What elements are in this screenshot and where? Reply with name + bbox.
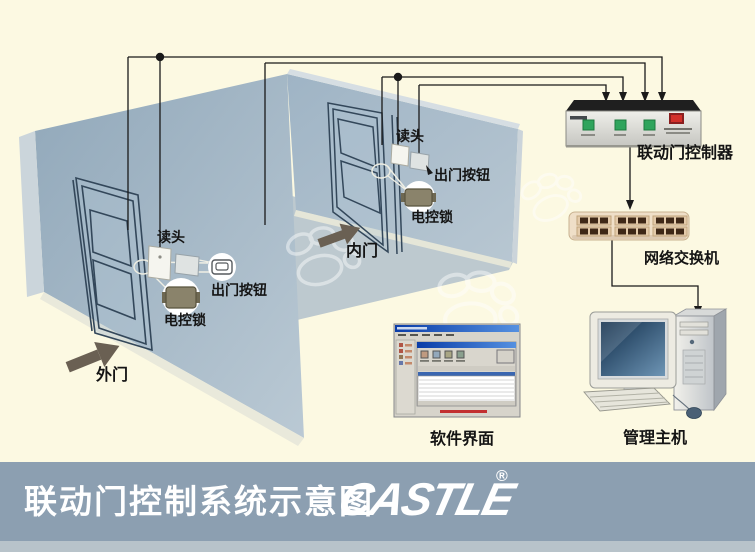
exit-button-icon-inner [216,263,228,270]
rj45-port [600,218,608,224]
tower-grille [683,350,705,384]
rj45-port [656,218,664,224]
rj45-port [600,229,608,235]
outer-reader-label: 读头 [157,229,185,245]
software-inner-titlebar [417,342,516,348]
software-filter-row [418,366,515,371]
controller-button-2 [615,120,626,130]
inner-reader-label: 读头 [396,128,424,144]
rj45-port [628,229,636,235]
registered-trademark-mark: ® [496,468,508,486]
controller-button-label-1 [581,134,595,136]
network-switch-label: 网络交换机 [644,249,719,267]
tower-drive-bay-1 [680,322,708,327]
brand-logo: CASTLE [334,472,518,526]
outer-door-label: 外门 [95,365,128,384]
rj45-port [618,218,626,224]
software-list-header [418,372,515,376]
junction-dot-2 [394,73,402,81]
inner-exit-button-device [410,152,429,171]
rj45-port [628,218,636,224]
software-statusbar [418,401,515,406]
management-host-label: 管理主机 [623,428,687,447]
software-window [394,324,520,417]
rj45-port [666,218,674,224]
controller-device [566,100,701,148]
inner-lock-label: 电控锁 [411,209,453,225]
controller-button-label-2 [614,134,626,136]
rj45-port [580,218,588,224]
mouse [687,408,702,419]
banner-bottom-strip [0,541,755,552]
rj45-port [638,229,646,235]
lock-icon [166,287,196,308]
outer-exit-button-label: 出门按钮 [211,282,267,298]
rj45-port [590,218,598,224]
outer-exit-button-device [175,254,199,276]
software-side-button [497,350,514,363]
controller-button-3 [644,120,655,130]
controller-brand-text [570,116,587,120]
controller-button-1 [583,120,594,130]
software-ui-label: 软件界面 [430,429,494,448]
rj45-port [638,218,646,224]
controller-top [566,100,701,111]
controller-model-text-1 [664,128,692,130]
inner-reader-device [391,144,409,166]
controller-button-label-3 [643,134,655,136]
title-banner: 联动门控制系统示意图 CASTLE ® [0,462,755,541]
door-control-diagram: 读头 出门按钮 电控锁 外门 读头 出门按钮 电控锁 内门 联动门控制器 网络交… [0,0,755,552]
tower-side [714,309,726,410]
controller-model-text-2 [666,132,690,134]
outer-reader-led [158,255,161,258]
outer-lock-label: 电控锁 [164,312,206,328]
rj45-port [580,229,588,235]
rj45-port [666,229,674,235]
outer-reader-device [148,246,171,280]
keyboard [584,388,670,411]
software-title-text [397,327,427,330]
rj45-port [618,229,626,235]
network-switch-device [569,212,689,240]
inner-exit-button-label: 出门按钮 [434,167,490,183]
software-alert-text [440,410,487,413]
tower-power-button [690,340,694,344]
rj45-port [656,229,664,235]
rj45-port [590,229,598,235]
arrowhead-switch [626,200,634,210]
tower-drive-bay-2 [680,330,708,335]
controller-label: 联动门控制器 [637,143,734,162]
management-host-computer [584,309,726,419]
diagram-title: 联动门控制系统示意图 [24,462,374,541]
junction-dot-1 [156,53,164,61]
inner-lock-icon [405,189,432,206]
rj45-port [676,218,684,224]
inner-door-label: 内门 [346,241,378,260]
rj45-port [676,229,684,235]
controller-power-switch [671,115,682,122]
